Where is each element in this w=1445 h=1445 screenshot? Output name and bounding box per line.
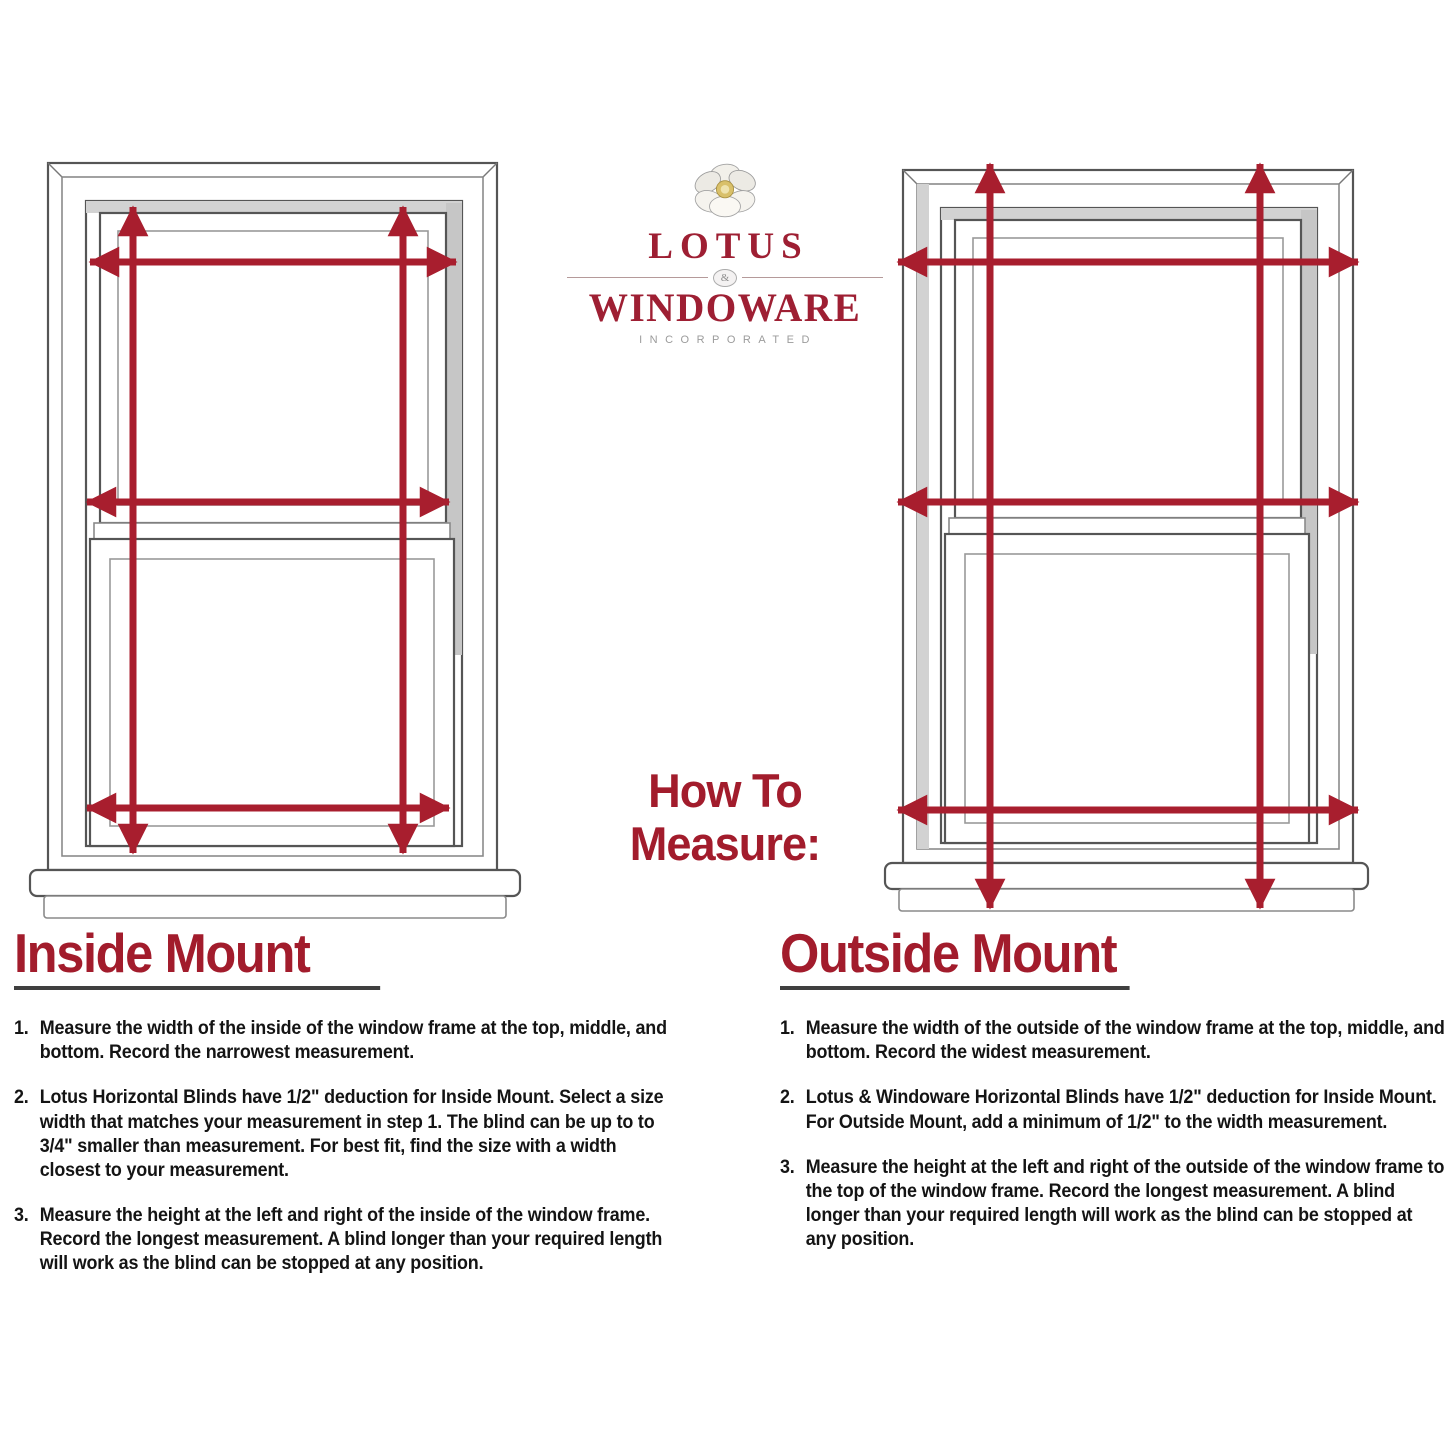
inside-mount-section: Inside Mount 1. Measure the width of the…	[14, 926, 680, 1276]
outside-mount-instructions: 1. Measure the width of the outside of t…	[780, 1016, 1445, 1251]
outside-mount-window-diagram	[880, 150, 1390, 940]
item-text: Measure the height at the left and right…	[40, 1203, 680, 1276]
item-number: 1.	[14, 1016, 40, 1064]
item-text: Lotus Horizontal Blinds have 1/2" deduct…	[40, 1085, 680, 1182]
instruction-item: 3. Measure the height at the left and ri…	[780, 1155, 1445, 1252]
item-number: 1.	[780, 1016, 806, 1064]
title-underline	[14, 986, 380, 990]
divider-line	[567, 277, 708, 278]
inside-mount-instructions: 1. Measure the width of the inside of th…	[14, 1016, 680, 1276]
item-text: Measure the width of the inside of the w…	[40, 1016, 680, 1064]
item-text: Measure the height at the left and right…	[806, 1155, 1445, 1252]
logo-windoware-text: WINDOWARE	[560, 288, 889, 328]
heading-line-1: How To	[564, 765, 887, 818]
instruction-item: 2. Lotus & Windoware Horizontal Blinds h…	[780, 1085, 1445, 1133]
logo-incorporated-text: INCORPORATED	[557, 334, 893, 346]
title-underline	[780, 986, 1130, 990]
outside-mount-title: Outside Mount	[780, 926, 1445, 981]
heading-line-2: Measure:	[564, 818, 887, 871]
instruction-item: 2. Lotus Horizontal Blinds have 1/2" ded…	[14, 1085, 680, 1182]
item-number: 3.	[14, 1203, 40, 1276]
item-number: 2.	[14, 1085, 40, 1182]
outside-mount-section: Outside Mount 1. Measure the width of th…	[780, 926, 1445, 1251]
item-number: 3.	[780, 1155, 806, 1252]
inside-mount-window-diagram	[28, 155, 528, 930]
window-frame	[885, 170, 1368, 911]
page: { "logo": { "flower_icon": "lotus-flower…	[0, 0, 1445, 1445]
inside-mount-title: Inside Mount	[14, 926, 680, 981]
item-text: Measure the width of the outside of the …	[806, 1016, 1445, 1064]
lotus-flower-icon	[682, 156, 768, 226]
how-to-measure-heading: How To Measure:	[564, 765, 887, 870]
instruction-item: 1. Measure the width of the outside of t…	[780, 1016, 1445, 1064]
logo-lotus-text: LOTUS	[557, 228, 893, 267]
item-number: 2.	[780, 1085, 806, 1133]
lotus-windoware-logo: LOTUS & WINDOWARE INCORPORATED	[557, 156, 893, 346]
instruction-item: 1. Measure the width of the inside of th…	[14, 1016, 680, 1064]
instruction-item: 3. Measure the height at the left and ri…	[14, 1203, 680, 1276]
item-text: Lotus & Windoware Horizontal Blinds have…	[806, 1085, 1445, 1133]
divider-line	[742, 277, 883, 278]
